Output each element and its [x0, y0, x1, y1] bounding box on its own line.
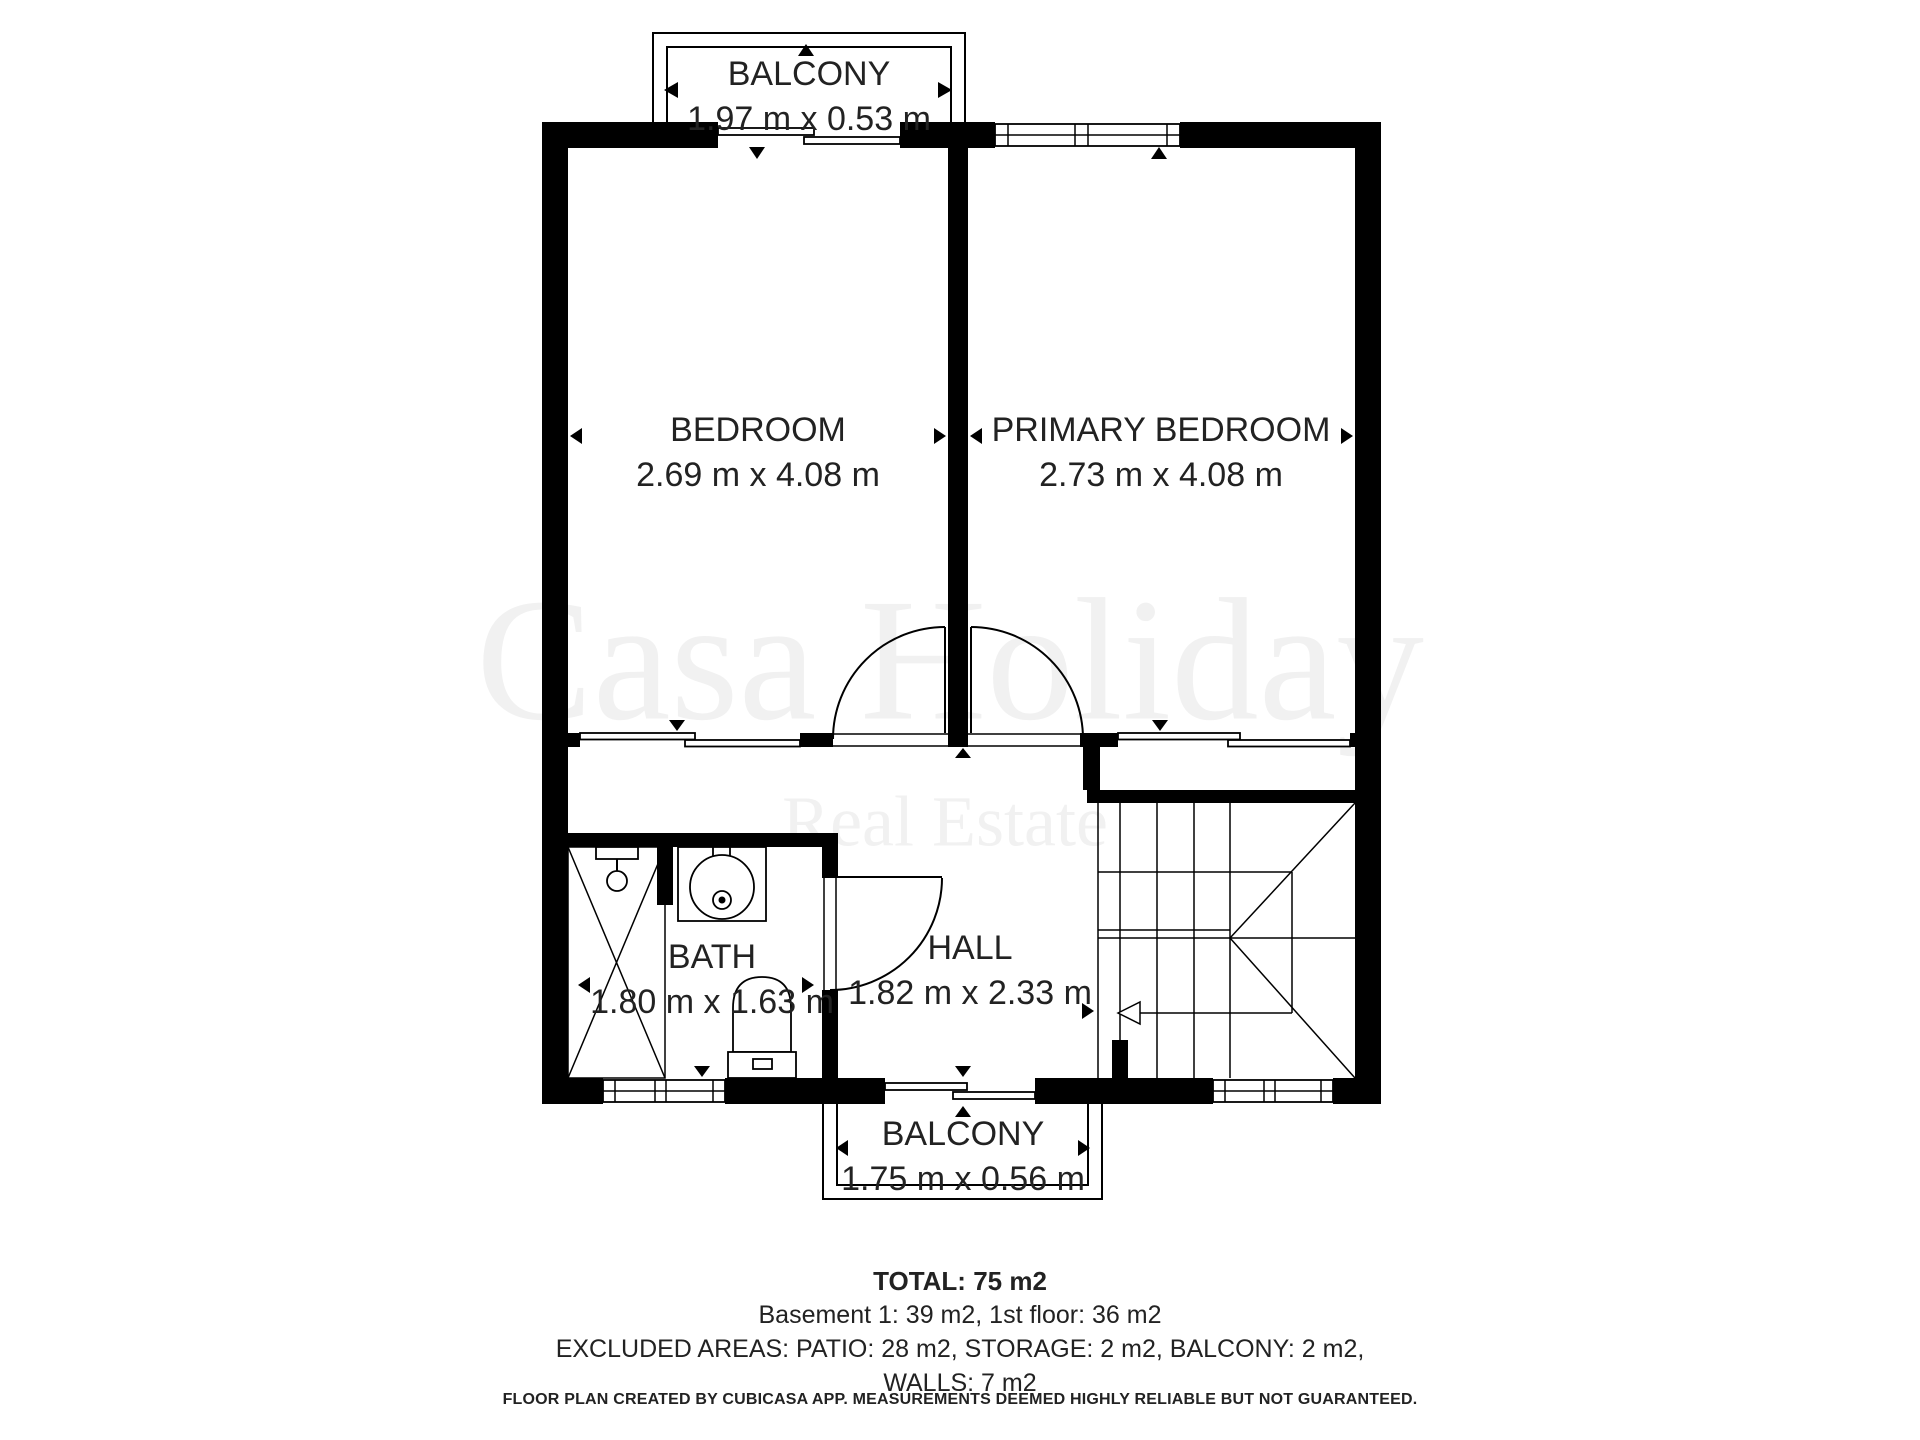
room-label-balcony-bottom: BALCONY 1.75 m x 0.56 m: [841, 1112, 1085, 1202]
window-symbol-bath: [603, 1080, 725, 1102]
staircase: [1098, 803, 1355, 1078]
sliding-door-bottom-balcony: [885, 1083, 1035, 1099]
door-bedroom: [833, 627, 948, 746]
floor-plan-svg: [0, 0, 1920, 1440]
room-label-hall: HALL 1.82 m x 2.33 m: [848, 926, 1092, 1016]
room-dimensions: 1.75 m x 0.56 m: [841, 1157, 1085, 1202]
room-label-bath: BATH 1.80 m x 1.63 m: [590, 935, 834, 1025]
sliding-door-bedroom: [580, 733, 800, 747]
room-dimensions: 1.82 m x 2.33 m: [848, 971, 1092, 1016]
room-label-bedroom: BEDROOM 2.69 m x 4.08 m: [636, 408, 880, 498]
disclaimer-text: FLOOR PLAN CREATED BY CUBICASA APP. MEAS…: [503, 1391, 1418, 1409]
room-name: BALCONY: [687, 52, 931, 97]
floor-plan-page: Casa Holiday Real Estate: [0, 0, 1920, 1440]
area-summary: TOTAL: 75 m2 Basement 1: 39 m2, 1st floo…: [556, 1264, 1365, 1400]
sliding-door-primary-bedroom: [1118, 733, 1350, 747]
window-symbol-top: [995, 124, 1180, 146]
room-name: BEDROOM: [636, 408, 880, 453]
room-name: HALL: [848, 926, 1092, 971]
excluded-areas-line1: EXCLUDED AREAS: PATIO: 28 m2, STORAGE: 2…: [556, 1332, 1365, 1366]
sink: [678, 847, 766, 921]
room-name: PRIMARY BEDROOM: [992, 408, 1331, 453]
room-dimensions: 1.97 m x 0.53 m: [687, 97, 931, 142]
shower-head-icon: [596, 847, 638, 891]
window-symbol-stairs: [1213, 1080, 1333, 1102]
room-dimensions: 1.80 m x 1.63 m: [590, 980, 834, 1025]
room-dimensions: 2.73 m x 4.08 m: [992, 453, 1331, 498]
room-label-primary-bedroom: PRIMARY BEDROOM 2.73 m x 4.08 m: [992, 408, 1331, 498]
room-name: BATH: [590, 935, 834, 980]
door-primary-bedroom: [968, 627, 1083, 746]
total-area: TOTAL: 75 m2: [556, 1264, 1365, 1298]
floor-breakdown: Basement 1: 39 m2, 1st floor: 36 m2: [556, 1298, 1365, 1332]
room-name: BALCONY: [841, 1112, 1085, 1157]
room-dimensions: 2.69 m x 4.08 m: [636, 453, 880, 498]
stair-direction-arrow: [1118, 1002, 1230, 1024]
room-label-balcony-top: BALCONY 1.97 m x 0.53 m: [687, 52, 931, 142]
